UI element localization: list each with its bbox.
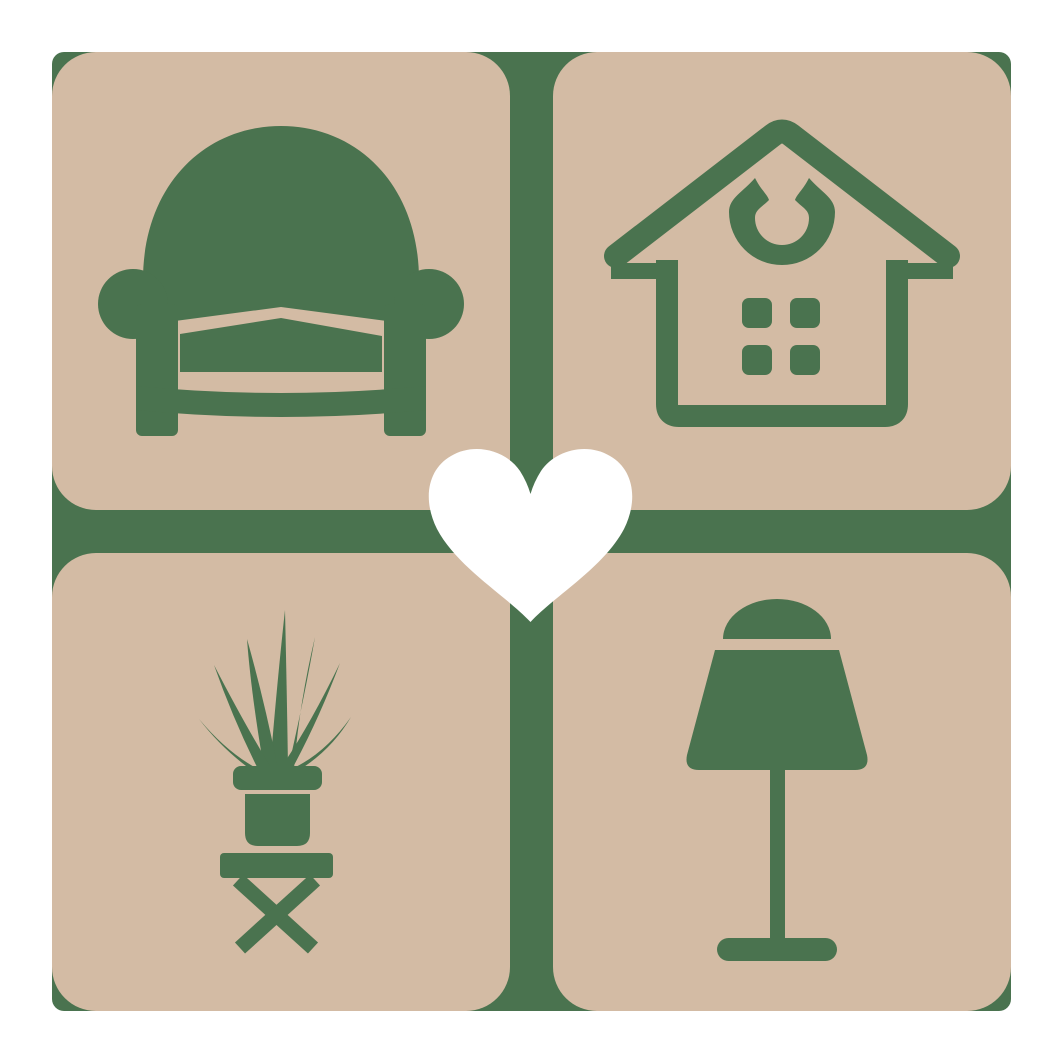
window-pane: [742, 298, 772, 328]
lamp-shade: [687, 650, 868, 770]
armchair-arm-right-post: [384, 304, 426, 436]
lamp-base: [717, 938, 837, 961]
window-pane: [790, 298, 820, 328]
pot-body: [245, 794, 310, 846]
pot-rim: [233, 766, 322, 790]
window-pane: [790, 345, 820, 375]
logo-stage: [0, 0, 1063, 1063]
furniture-home-logo: [0, 0, 1063, 1063]
lamp-stem: [770, 770, 785, 946]
window-pane: [742, 345, 772, 375]
armchair-arm-left-post: [136, 304, 178, 436]
stool-seat: [220, 853, 333, 878]
